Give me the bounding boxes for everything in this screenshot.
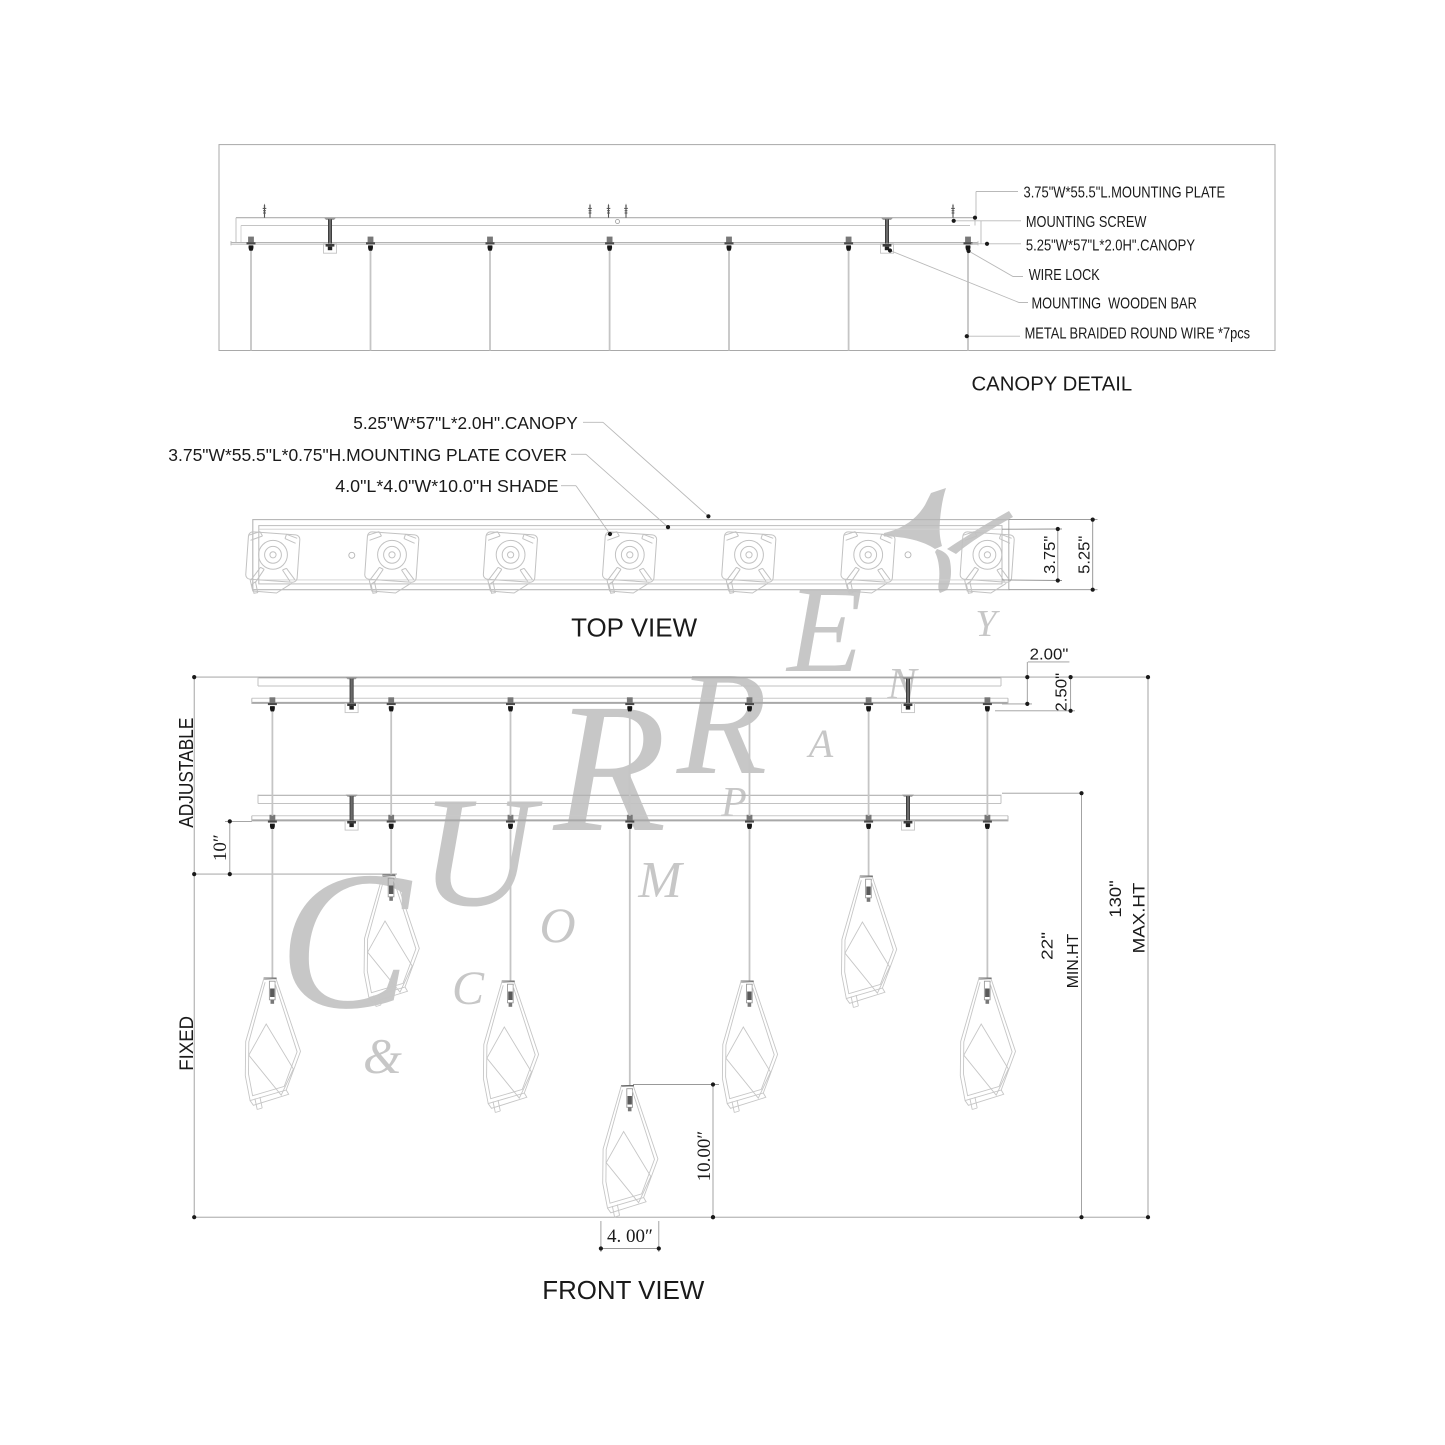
svg-text:MOUNTING WOODEN BAR: MOUNTING WOODEN BAR [1032,296,1197,313]
svg-text:MIN.HT: MIN.HT [1065,934,1082,989]
svg-text:5.25": 5.25" [1077,536,1094,574]
svg-text:22": 22" [1040,932,1057,960]
svg-text:TOP VIEW: TOP VIEW [571,613,697,643]
svg-text:O: O [539,897,575,953]
svg-text:5.25"W*57"L*2.0H".CANOPY: 5.25"W*57"L*2.0H".CANOPY [1026,238,1195,255]
svg-text:WIRE LOCK: WIRE LOCK [1029,267,1101,284]
svg-text:C: C [278,831,412,1050]
svg-text:CANOPY DETAIL: CANOPY DETAIL [972,374,1133,396]
svg-text:10″: 10″ [210,834,231,861]
svg-text:MAX.HT: MAX.HT [1130,883,1149,954]
svg-text:FRONT VIEW: FRONT VIEW [542,1275,704,1305]
svg-text:3.75"W*55.5"L.MOUNTING PLATE: 3.75"W*55.5"L.MOUNTING PLATE [1024,185,1226,202]
svg-text:MOUNTING SCREW: MOUNTING SCREW [1026,214,1147,231]
svg-text:R: R [552,666,666,871]
svg-text:N: N [886,659,919,708]
svg-text:A: A [806,721,834,766]
svg-text:2.50": 2.50" [1054,673,1071,712]
svg-text:4.0"L*4.0"W*10.0"H SHADE: 4.0"L*4.0"W*10.0"H SHADE [335,476,558,496]
svg-text:5.25"W*57"L*2.0H".CANOPY: 5.25"W*57"L*2.0H".CANOPY [353,413,578,433]
svg-text:ADJUSTABLE: ADJUSTABLE [176,718,198,828]
svg-text:2.00": 2.00" [1030,646,1069,663]
svg-text:4. 00″: 4. 00″ [607,1226,653,1247]
svg-text:METAL BRAIDED ROUND WIRE *7pcs: METAL BRAIDED ROUND WIRE *7pcs [1025,325,1251,342]
svg-text:3.75"W*55.5"L*0.75"H.MOUNTING: 3.75"W*55.5"L*0.75"H.MOUNTING PLATE COVE… [168,445,567,465]
svg-text:130": 130" [1106,880,1125,917]
svg-text:C: C [452,962,485,1015]
svg-text:M: M [637,852,684,909]
svg-text:3.75": 3.75" [1042,536,1059,574]
svg-text:10.00″: 10.00″ [694,1131,715,1182]
svg-text:FIXED: FIXED [177,1016,198,1071]
svg-text:&: & [363,1028,402,1084]
svg-text:U: U [420,765,543,940]
